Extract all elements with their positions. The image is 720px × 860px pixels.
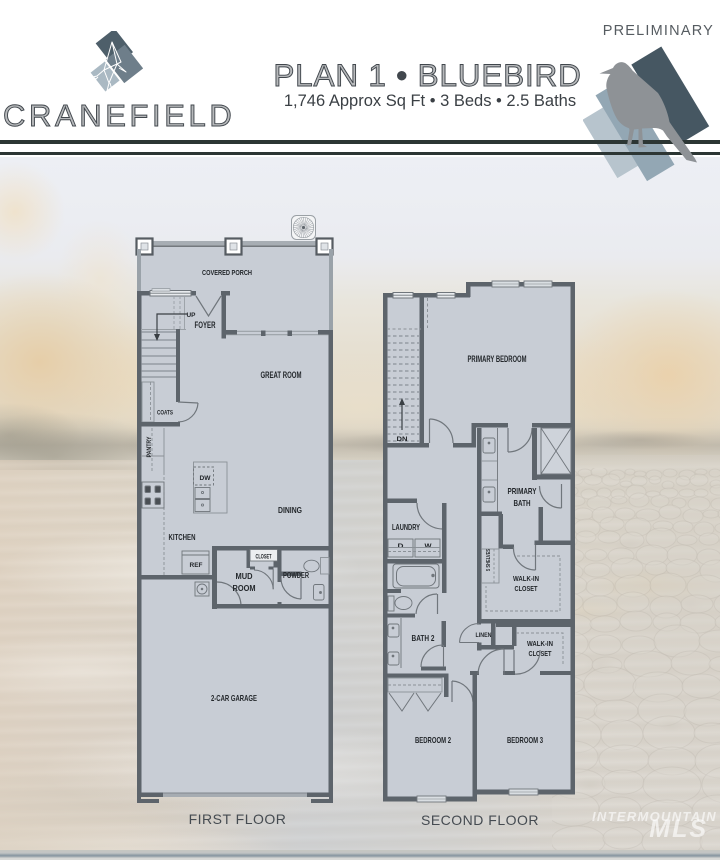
- svg-text:D: D: [398, 544, 405, 550]
- svg-text:DN: DN: [397, 437, 408, 443]
- svg-text:PRIMARY BEDROOM: PRIMARY BEDROOM: [468, 354, 527, 364]
- svg-text:CLOSET: CLOSET: [256, 554, 272, 561]
- svg-text:DINING: DINING: [278, 505, 302, 515]
- svg-text:BATH 2: BATH 2: [412, 633, 435, 643]
- svg-text:MUD: MUD: [236, 572, 253, 581]
- svg-text:COATS: COATS: [157, 410, 173, 417]
- svg-text:LAUNDRY: LAUNDRY: [392, 523, 420, 532]
- svg-text:CLOSET: CLOSET: [515, 586, 539, 593]
- svg-text:BATH: BATH: [514, 498, 531, 508]
- svg-text:PRIMARY: PRIMARY: [508, 486, 537, 496]
- svg-text:BEDROOM 2: BEDROOM 2: [415, 735, 451, 745]
- svg-text:W: W: [425, 544, 432, 550]
- svg-text:LINEN: LINEN: [476, 633, 492, 639]
- svg-text:GREAT ROOM: GREAT ROOM: [261, 370, 302, 381]
- svg-text:ROOM: ROOM: [233, 584, 256, 593]
- svg-text:FOYER: FOYER: [195, 320, 216, 330]
- svg-text:WALK-IN: WALK-IN: [513, 576, 539, 583]
- svg-text:POWDER: POWDER: [283, 571, 309, 580]
- svg-text:PANTRY: PANTRY: [146, 436, 153, 458]
- svg-text:DW: DW: [200, 475, 212, 482]
- svg-text:2-CAR GARAGE: 2-CAR GARAGE: [211, 693, 257, 703]
- svg-text:BEDROOM 3: BEDROOM 3: [507, 735, 543, 745]
- svg-text:COVERED PORCH: COVERED PORCH: [202, 268, 252, 277]
- svg-text:WALK-IN: WALK-IN: [527, 641, 553, 648]
- svg-text:REF: REF: [190, 562, 203, 569]
- svg-text:UP: UP: [187, 313, 196, 319]
- svg-text:5 SHELVES: 5 SHELVES: [486, 549, 492, 571]
- svg-text:KITCHEN: KITCHEN: [169, 532, 196, 542]
